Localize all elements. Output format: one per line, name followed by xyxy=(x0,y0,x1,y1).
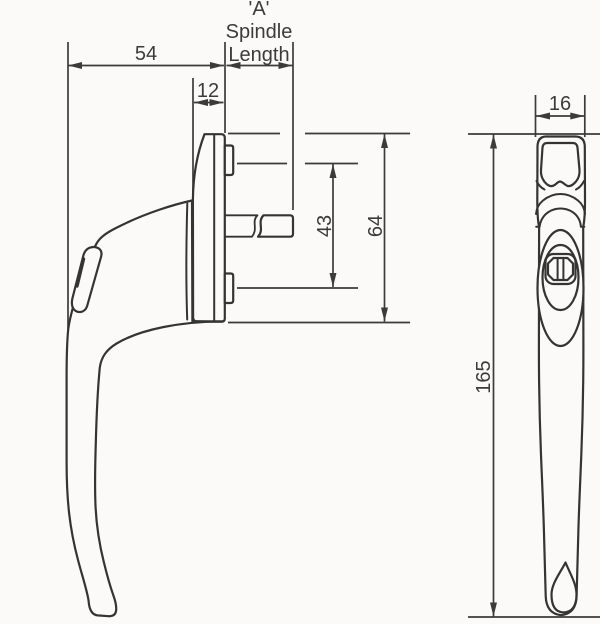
dim-spindle-label-line2: Spindle xyxy=(226,21,293,43)
dim-54: 54 xyxy=(68,43,224,66)
spindle-shaft-outer xyxy=(258,215,293,236)
dim-16-label: 16 xyxy=(549,93,571,115)
grip-endcap-line xyxy=(186,204,187,320)
window-handle-technical-drawing: 54 'A' Spindle Length 12 43 64 xyxy=(0,0,600,624)
dim-165-label: 165 xyxy=(473,360,495,393)
side-view-handle xyxy=(67,134,293,616)
thumb-recess xyxy=(541,143,580,186)
side-view: 54 'A' Spindle Length 12 43 64 xyxy=(67,0,410,616)
dim-spindle-label-line3: Length xyxy=(228,44,289,66)
key-cylinder-octagon xyxy=(548,258,573,280)
dim-spindle-length: 'A' Spindle Length xyxy=(226,0,293,66)
dim-64: 64 xyxy=(365,134,387,322)
dim-54-label: 54 xyxy=(135,43,157,65)
dim-64-label: 64 xyxy=(365,215,387,237)
dim-16: 16 xyxy=(536,93,584,116)
handle-neck xyxy=(193,134,225,322)
fixing-lug-bottom xyxy=(225,274,233,304)
dim-12-label: 12 xyxy=(197,80,219,102)
front-view: 16 xyxy=(468,93,600,617)
fixing-lug-top xyxy=(225,146,233,176)
spindle-shaft-inner xyxy=(225,215,258,236)
front-view-handle xyxy=(536,137,585,616)
dim-spindle-label-line1: 'A' xyxy=(249,0,270,20)
dim-12: 12 xyxy=(194,80,224,103)
dim-43-label: 43 xyxy=(314,215,336,237)
dim-43: 43 xyxy=(314,164,336,287)
dim-165: 165 xyxy=(473,135,495,617)
technical-drawing-page: 54 'A' Spindle Length 12 43 64 xyxy=(0,0,600,624)
